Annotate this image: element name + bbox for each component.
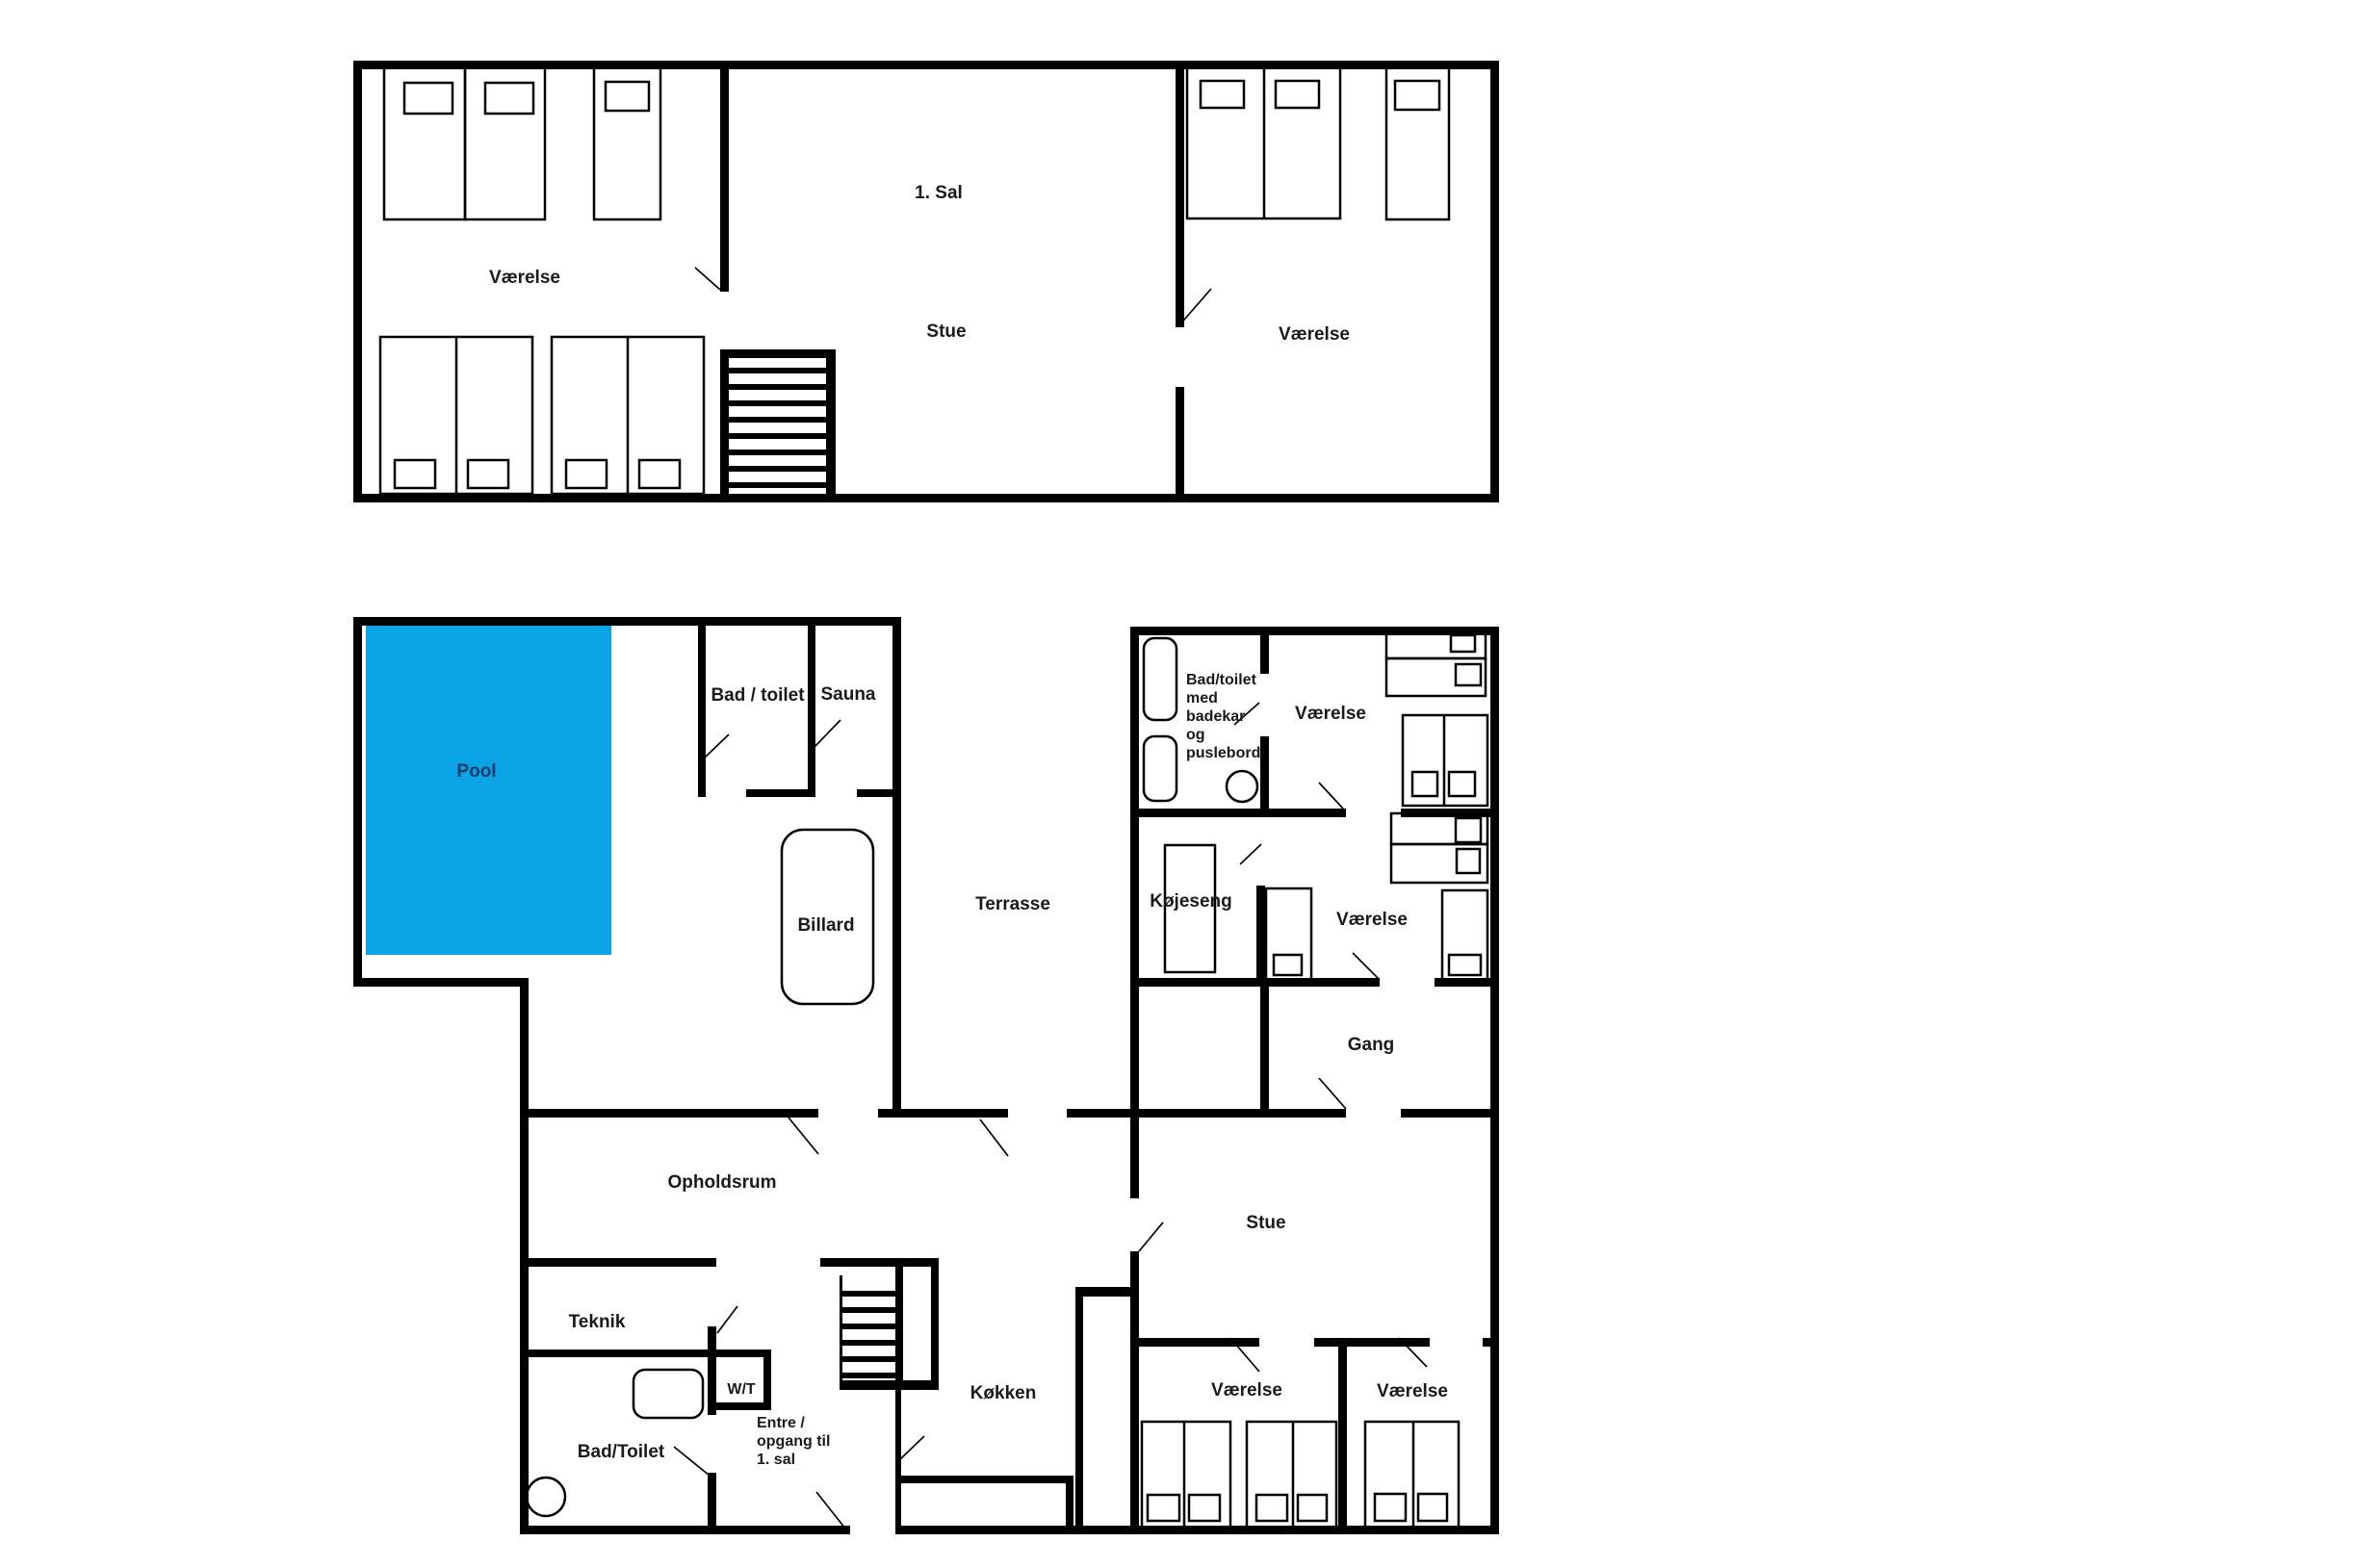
door-swing-lines [695, 268, 1211, 326]
room-label-bedroom-4: Værelse [1377, 1381, 1448, 1402]
room-label-bedroom-2: Værelse [1336, 910, 1408, 931]
pool-water [366, 626, 611, 955]
double-bed-icon [380, 337, 532, 494]
sink-icon [527, 1478, 565, 1516]
room-label-family-bath: Bad/toilet med badekar og puslebord [1186, 672, 1260, 762]
bed-icon [594, 65, 660, 219]
stairs-icon [840, 1275, 895, 1380]
bed-icon [1442, 890, 1487, 982]
room-label-kitchen: Køkken [970, 1383, 1037, 1404]
room-label-common-room: Opholdsrum [668, 1172, 777, 1194]
room-label-living-lower: Stue [1246, 1213, 1285, 1234]
room-label-sauna: Sauna [820, 684, 875, 706]
room-label-bedroom-1: Værelse [1295, 704, 1366, 725]
floor-plan: Værelse 1. Sal Stue Værelse Bad / toilet… [0, 0, 2353, 1568]
double-bed-icon [1403, 715, 1487, 806]
room-label-living-upper: Stue [926, 321, 966, 343]
bed-icon [1386, 67, 1449, 219]
double-bed-icon [1247, 1422, 1336, 1528]
room-label-bath-toilet: Bad / toilet [711, 685, 804, 707]
room-label-tech: Teknik [569, 1312, 626, 1333]
stairs-icon [729, 349, 836, 502]
floor-plan-drawing [0, 0, 2353, 1568]
double-bed-icon [1142, 1422, 1230, 1528]
room-label-bedroom-upper-left: Værelse [489, 268, 560, 289]
bunk-bed-icon [1386, 629, 1486, 696]
floor-label-1-sal: 1. Sal [915, 183, 963, 204]
room-label-bedroom-upper-right: Værelse [1279, 324, 1350, 346]
room-label-wt: W/T [727, 1381, 755, 1399]
toilet-icon [1144, 736, 1176, 801]
room-label-bunkroom: Køjeseng [1150, 891, 1232, 913]
room-label-terrace: Terrasse [975, 894, 1050, 915]
room-label-hall: Gang [1348, 1035, 1395, 1056]
bathtub-icon [633, 1370, 703, 1418]
label-billiard: Billard [797, 915, 854, 937]
sink-icon [1227, 771, 1257, 802]
room-label-pool: Pool [456, 761, 496, 783]
double-bed-icon [1365, 1422, 1459, 1528]
double-bed-icon [1187, 67, 1340, 218]
bed-icon [384, 65, 465, 219]
bed-icon [1266, 888, 1311, 982]
bunk-bed-icon [1391, 813, 1487, 883]
double-bed-icon [552, 337, 704, 494]
bed-icon [465, 65, 545, 219]
room-label-entry: Entre / opgang til 1. sal [757, 1415, 830, 1470]
room-label-bath-toilet-2: Bad/Toilet [578, 1442, 664, 1463]
room-label-bedroom-3: Værelse [1211, 1380, 1282, 1401]
bathtub-icon [1144, 638, 1176, 720]
